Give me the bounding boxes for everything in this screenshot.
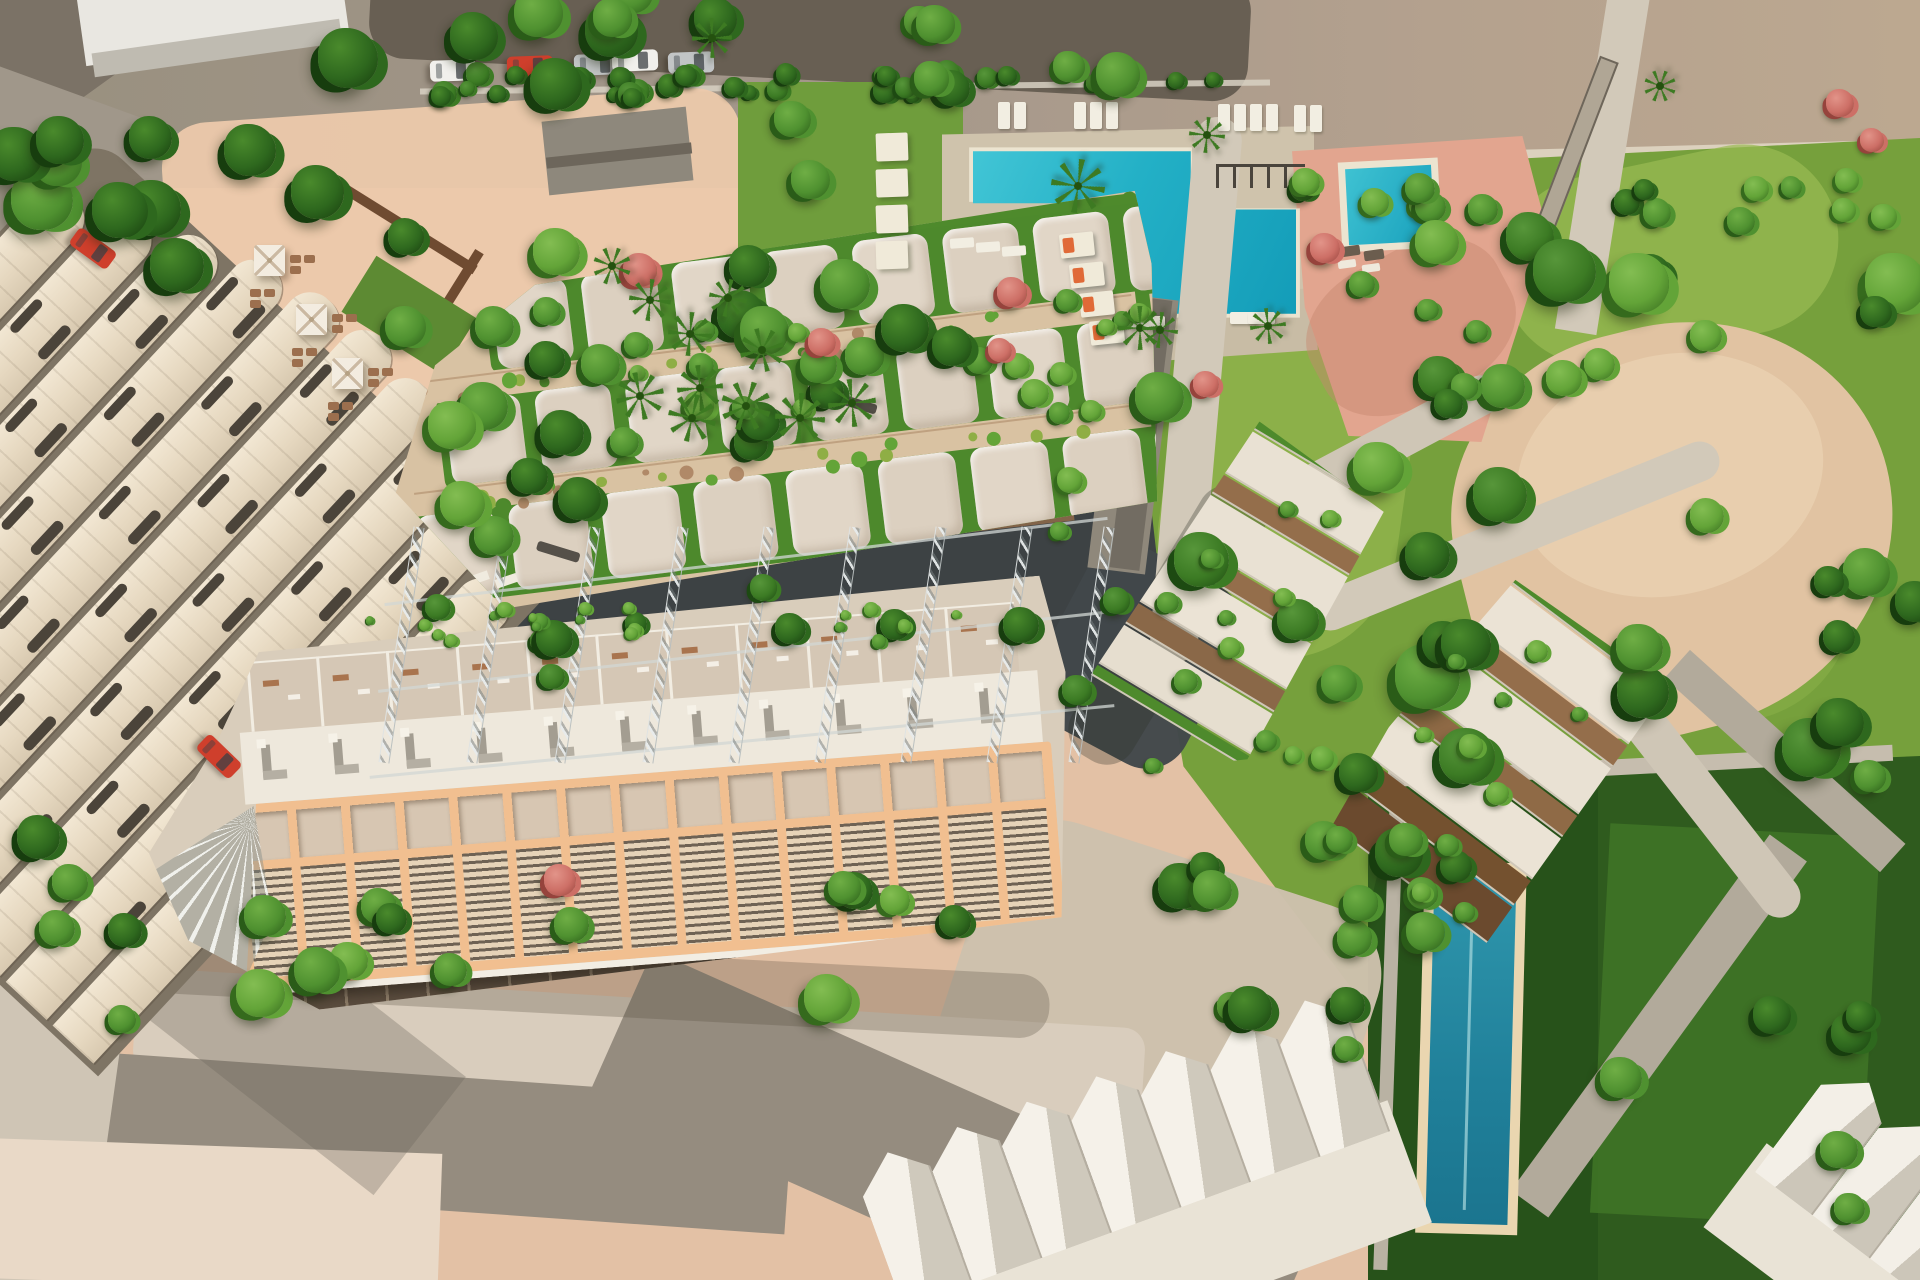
tree xyxy=(533,228,580,275)
tree xyxy=(529,341,565,377)
palm-crown xyxy=(635,391,645,401)
tree xyxy=(1135,372,1184,421)
palm-crown xyxy=(1073,181,1082,190)
tree xyxy=(475,306,514,345)
tree xyxy=(558,477,601,520)
tree xyxy=(1056,289,1079,312)
tree xyxy=(1228,986,1272,1030)
tree xyxy=(1049,402,1070,423)
tree xyxy=(1339,753,1378,792)
tree xyxy=(1343,885,1379,921)
tree xyxy=(1448,654,1463,669)
tree xyxy=(1103,587,1130,614)
tree xyxy=(108,1005,136,1033)
tree xyxy=(1311,746,1335,770)
tree xyxy=(1415,220,1459,264)
tree xyxy=(244,895,285,936)
tree xyxy=(1057,467,1083,493)
tree xyxy=(1096,52,1140,96)
tree xyxy=(318,28,378,88)
palm-tree xyxy=(1182,110,1232,160)
tree xyxy=(514,0,563,37)
tree xyxy=(881,304,929,352)
tree xyxy=(1832,198,1856,222)
tree xyxy=(507,66,525,84)
tree xyxy=(1486,782,1509,805)
tree xyxy=(1168,72,1185,89)
tree xyxy=(108,913,143,948)
tree xyxy=(540,410,585,455)
palm-tree xyxy=(1048,156,1109,217)
tree xyxy=(1823,620,1856,653)
tree xyxy=(1753,996,1791,1034)
tree xyxy=(419,619,431,631)
tree xyxy=(1050,522,1068,540)
tree xyxy=(623,602,635,614)
palm-crown xyxy=(684,328,695,339)
palm-crown xyxy=(1656,82,1665,91)
palm-tree xyxy=(1245,303,1292,350)
tree xyxy=(828,871,861,904)
tree xyxy=(804,974,852,1022)
tree xyxy=(1417,299,1438,320)
tree xyxy=(932,326,972,366)
tree xyxy=(1860,296,1892,328)
tree xyxy=(497,602,513,618)
tree xyxy=(1330,987,1365,1022)
palm-crown xyxy=(707,33,717,43)
palm-crown xyxy=(1263,321,1273,331)
tree xyxy=(1609,253,1669,313)
tree xyxy=(776,63,798,85)
tree xyxy=(1816,698,1864,746)
tree xyxy=(1326,826,1353,853)
tree xyxy=(1634,179,1655,200)
tree xyxy=(92,182,148,238)
tree xyxy=(1321,665,1357,701)
tree xyxy=(998,66,1018,86)
tree xyxy=(1871,204,1896,229)
aerial-site-plan-rendering xyxy=(0,0,1920,1280)
tree xyxy=(864,602,879,617)
tree xyxy=(388,218,425,255)
tree xyxy=(1193,870,1233,910)
tree xyxy=(1256,730,1277,751)
tree xyxy=(845,337,883,375)
tree xyxy=(880,885,911,916)
tree xyxy=(1572,707,1587,722)
tree xyxy=(1416,727,1431,742)
tree xyxy=(576,615,585,624)
palm-crown xyxy=(1155,325,1164,334)
tree xyxy=(841,610,850,619)
tree xyxy=(1145,758,1161,774)
tree xyxy=(1349,271,1375,297)
tree xyxy=(916,5,954,43)
tree xyxy=(445,634,458,647)
tree xyxy=(1617,665,1669,717)
tree xyxy=(1826,89,1854,117)
tree xyxy=(1781,176,1802,197)
tree xyxy=(1174,669,1198,693)
tree xyxy=(1468,194,1498,224)
tree xyxy=(366,616,375,625)
tree xyxy=(150,238,205,293)
tree xyxy=(440,481,485,526)
tree xyxy=(450,12,498,60)
palm-crown xyxy=(724,294,733,303)
tree xyxy=(593,0,632,37)
tree xyxy=(675,65,696,86)
tree xyxy=(788,323,807,342)
tree xyxy=(1533,239,1596,302)
palm-crown xyxy=(686,412,697,423)
tree xyxy=(1546,360,1581,395)
tree xyxy=(808,328,836,356)
tree xyxy=(1003,607,1039,643)
tree xyxy=(1406,912,1445,951)
tree xyxy=(1053,51,1085,83)
tree xyxy=(1361,188,1389,216)
tree xyxy=(898,619,911,632)
tree xyxy=(623,88,642,107)
tree xyxy=(1459,734,1483,758)
tree xyxy=(1206,72,1221,87)
tree xyxy=(1292,168,1319,195)
tree xyxy=(224,124,276,176)
tree xyxy=(1860,128,1884,152)
tree xyxy=(1098,319,1114,335)
tree xyxy=(1353,442,1403,492)
tree xyxy=(1337,920,1372,955)
tree xyxy=(1835,168,1859,192)
tree xyxy=(625,627,638,640)
tree xyxy=(1081,400,1102,421)
tree xyxy=(533,297,561,325)
tree xyxy=(236,969,284,1017)
tree xyxy=(428,401,476,449)
tree xyxy=(1193,371,1219,397)
tree xyxy=(1412,883,1431,902)
tree xyxy=(791,160,830,199)
tree xyxy=(997,277,1027,307)
tree xyxy=(1496,692,1511,707)
tree xyxy=(775,613,806,644)
tree xyxy=(914,61,949,96)
tree xyxy=(1219,610,1234,625)
tree xyxy=(539,664,564,689)
tree xyxy=(877,66,897,86)
palm-crown xyxy=(606,260,617,271)
tree xyxy=(1389,823,1422,856)
tree xyxy=(1280,501,1296,517)
palm-crown xyxy=(847,398,857,408)
tree xyxy=(1455,902,1475,922)
tree xyxy=(1405,532,1450,577)
tree xyxy=(385,306,426,347)
tree xyxy=(1062,675,1092,705)
tree xyxy=(434,953,467,986)
tree xyxy=(52,864,88,900)
tree xyxy=(1050,362,1073,385)
tree xyxy=(1814,566,1844,596)
tree xyxy=(433,629,444,640)
tree xyxy=(1466,320,1488,342)
tree xyxy=(939,905,971,937)
tree xyxy=(1600,1057,1642,1099)
tree xyxy=(39,910,75,946)
tree xyxy=(1285,746,1303,764)
tree xyxy=(1434,389,1463,418)
tree xyxy=(1481,364,1525,408)
tree xyxy=(1157,592,1179,614)
tree xyxy=(835,622,845,632)
tree xyxy=(1322,510,1338,526)
tree xyxy=(1843,548,1890,595)
tree xyxy=(1820,1131,1857,1168)
palm-crown xyxy=(1201,129,1212,140)
palm-crown xyxy=(645,295,654,304)
tree xyxy=(530,58,582,110)
tree xyxy=(17,815,61,859)
tree xyxy=(610,427,639,456)
tree xyxy=(1846,1001,1876,1031)
tree xyxy=(1335,1036,1360,1061)
tree xyxy=(1021,379,1049,407)
palm-tree xyxy=(1642,68,1677,103)
tree xyxy=(511,458,548,495)
tree xyxy=(554,907,589,942)
tree xyxy=(431,86,451,106)
tree xyxy=(460,81,475,96)
tree xyxy=(1727,207,1755,235)
tree xyxy=(1310,233,1340,263)
tree xyxy=(1437,834,1459,856)
tree xyxy=(1643,198,1671,226)
tree xyxy=(1473,467,1527,521)
tree xyxy=(581,344,621,384)
tree xyxy=(952,610,961,619)
tree xyxy=(820,259,870,309)
tree xyxy=(1220,637,1241,658)
vegetation-layer xyxy=(0,0,1920,1280)
tree xyxy=(624,332,649,357)
tree xyxy=(36,116,84,164)
tree xyxy=(579,602,593,616)
tree xyxy=(474,516,514,556)
tree xyxy=(1690,320,1721,351)
tree xyxy=(129,116,172,159)
tree xyxy=(532,622,541,631)
tree xyxy=(425,594,451,620)
tree xyxy=(872,634,887,649)
palm-tree xyxy=(610,366,669,425)
tree xyxy=(1616,624,1662,670)
tree xyxy=(291,165,345,219)
tree xyxy=(294,947,340,993)
tree xyxy=(977,67,997,87)
tree xyxy=(1854,760,1886,792)
tree xyxy=(988,338,1012,362)
tree xyxy=(1275,588,1293,606)
tree xyxy=(724,77,745,98)
tree xyxy=(1690,498,1724,532)
tree xyxy=(1584,348,1616,380)
tree xyxy=(1834,1193,1864,1223)
palm-crown xyxy=(740,400,751,411)
tree xyxy=(376,903,407,934)
palm-crown xyxy=(757,345,767,355)
palm-tree xyxy=(659,303,720,364)
tree xyxy=(1895,581,1920,621)
tree xyxy=(544,864,576,896)
tree xyxy=(774,101,810,137)
tree xyxy=(1527,640,1548,661)
tree xyxy=(489,85,506,102)
palm-crown xyxy=(695,383,705,393)
palm-crown xyxy=(795,413,804,422)
tree xyxy=(1405,173,1435,203)
tree xyxy=(750,574,777,601)
tree xyxy=(1744,176,1769,201)
